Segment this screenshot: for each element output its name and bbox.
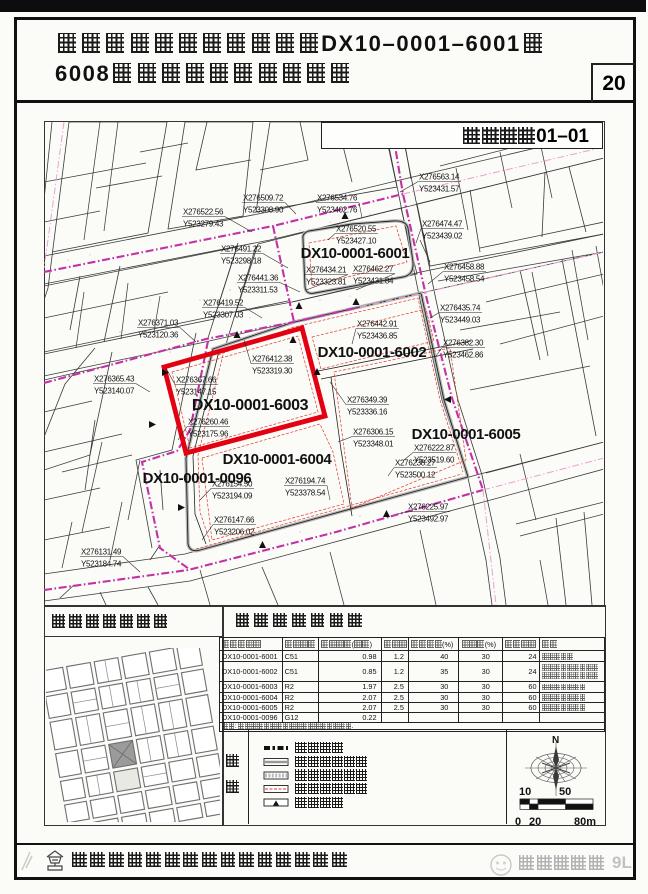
svg-text:X276441.36: X276441.36	[238, 274, 279, 283]
svg-text:X276509.72: X276509.72	[243, 194, 284, 203]
svg-text:X276474.47: X276474.47	[422, 220, 463, 229]
svg-text:X276412.38: X276412.38	[252, 355, 293, 364]
svg-text:Y523319.30: Y523319.30	[252, 367, 293, 376]
svg-text:10: 10	[519, 786, 531, 798]
svg-text:N: N	[552, 735, 559, 746]
svg-text:X276522.56: X276522.56	[183, 208, 224, 217]
svg-text:Y523307.03: Y523307.03	[203, 311, 244, 320]
svg-text:Y523492.97: Y523492.97	[408, 515, 449, 524]
svg-text:80m: 80m	[574, 816, 596, 828]
svg-text:Y523462.86: Y523462.86	[443, 351, 484, 360]
svg-text:Y523431.84: Y523431.84	[353, 277, 394, 286]
svg-text:DX10-0001-0096: DX10-0001-0096	[143, 470, 252, 487]
svg-text:DX10-0001-6001: DX10-0001-6001	[301, 245, 410, 262]
svg-text:X276365.43: X276365.43	[94, 375, 135, 384]
svg-text:0: 0	[515, 816, 521, 828]
svg-text:Y523194.09: Y523194.09	[212, 492, 253, 501]
svg-text:X276225.97: X276225.97	[408, 503, 449, 512]
svg-text:Y523336.16: Y523336.16	[347, 408, 388, 417]
svg-text:DX10-0001-6003: DX10-0001-6003	[192, 397, 309, 414]
svg-text:Y523378.54: Y523378.54	[285, 489, 326, 498]
svg-text:Y523439.02: Y523439.02	[422, 232, 463, 241]
svg-text:50: 50	[559, 786, 571, 798]
svg-text:Y523402.76: Y523402.76	[317, 206, 358, 215]
svg-text:Y523311.53: Y523311.53	[238, 286, 278, 295]
svg-text:X276442.91: X276442.91	[357, 320, 398, 329]
svg-text:Y523140.07: Y523140.07	[94, 387, 135, 396]
svg-text:X276520.55: X276520.55	[336, 225, 377, 234]
svg-text:Y523519.60: Y523519.60	[414, 456, 455, 465]
svg-text:X276458.88: X276458.88	[444, 263, 485, 272]
svg-text:X276147.66: X276147.66	[214, 516, 255, 525]
svg-text:Y523279.43: Y523279.43	[183, 220, 224, 229]
svg-text:X276367.66: X276367.66	[176, 376, 217, 385]
svg-text:DX10-0001-6002: DX10-0001-6002	[318, 344, 427, 361]
svg-text:Y523298.18: Y523298.18	[221, 257, 262, 266]
svg-text:X276563.14: X276563.14	[419, 173, 460, 182]
svg-text:Y523436.85: Y523436.85	[357, 332, 398, 341]
svg-text:X276491.22: X276491.22	[221, 245, 262, 254]
svg-text:Y523206.02: Y523206.02	[214, 528, 255, 537]
svg-text:Y523458.54: Y523458.54	[444, 275, 485, 284]
svg-text:DX10-0001-6004: DX10-0001-6004	[223, 451, 333, 468]
svg-text:X276435.74: X276435.74	[440, 304, 481, 313]
svg-text:X276434.21: X276434.21	[306, 266, 347, 275]
svg-text:Y523147.15: Y523147.15	[176, 388, 217, 397]
svg-text:X276194.74: X276194.74	[285, 477, 326, 486]
svg-text:20: 20	[529, 816, 541, 828]
svg-text:X276371.03: X276371.03	[138, 319, 179, 328]
svg-text:Y523449.03: Y523449.03	[440, 316, 481, 325]
svg-text:X276260.46: X276260.46	[188, 418, 229, 427]
svg-text:X276534.76: X276534.76	[317, 194, 358, 203]
svg-text:Y523175.96: Y523175.96	[188, 430, 229, 439]
svg-text:Y523308.90: Y523308.90	[243, 206, 284, 215]
svg-text:X276349.39: X276349.39	[347, 396, 388, 405]
svg-text:X276462.27: X276462.27	[353, 265, 394, 274]
svg-text:Y523323.81: Y523323.81	[306, 278, 347, 287]
svg-text:X276131.49: X276131.49	[81, 548, 122, 557]
svg-text:Y523120.36: Y523120.36	[138, 331, 179, 340]
svg-text:DX10-0001-6005: DX10-0001-6005	[412, 426, 521, 443]
svg-text:X276306.15: X276306.15	[353, 428, 394, 437]
svg-text:Y523184.74: Y523184.74	[81, 560, 122, 569]
svg-text:X276382.30: X276382.30	[443, 339, 484, 348]
svg-text:Y523431.57: Y523431.57	[419, 185, 460, 194]
svg-text:Y523500.12: Y523500.12	[395, 471, 436, 480]
svg-text:Y523348.01: Y523348.01	[353, 440, 394, 449]
svg-text:X276419.52: X276419.52	[203, 299, 244, 308]
svg-text:X276222.87: X276222.87	[414, 444, 455, 453]
